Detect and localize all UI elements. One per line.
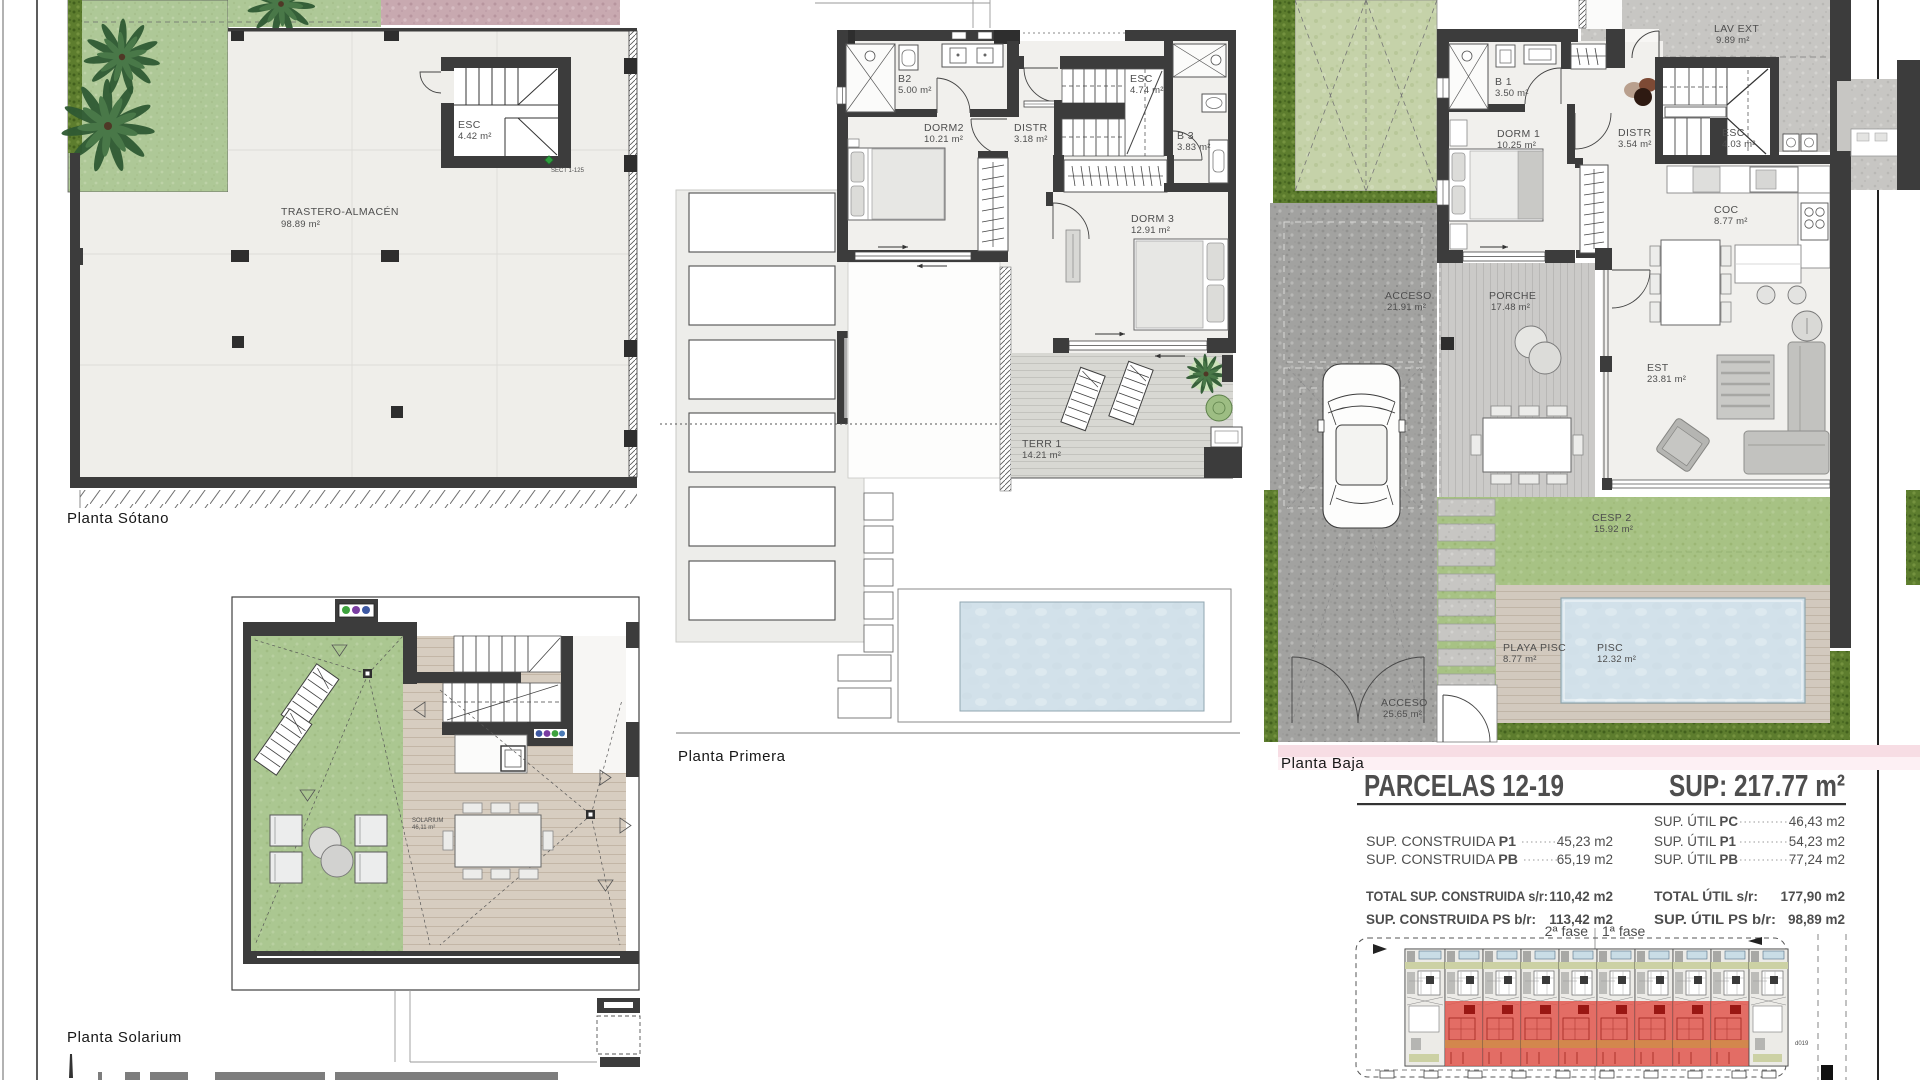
- svg-text:B 3: B 3: [1177, 130, 1194, 142]
- svg-text:SUP. ÚTIL PB: SUP. ÚTIL PB: [1654, 852, 1738, 867]
- svg-text:ESC: ESC: [1722, 127, 1745, 139]
- svg-text:TRASTERO-ALMACÉN: TRASTERO-ALMACÉN: [281, 205, 399, 218]
- svg-text:SECT 1-125: SECT 1-125: [551, 168, 585, 174]
- svg-text:8.77 m²: 8.77 m²: [1503, 654, 1537, 665]
- svg-text:98,89 m2: 98,89 m2: [1788, 912, 1845, 927]
- svg-text:Planta Baja: Planta Baja: [1281, 755, 1364, 772]
- svg-text:ACCESO: ACCESO: [1385, 290, 1432, 302]
- svg-text:SUP. CONSTRUIDA PB: SUP. CONSTRUIDA PB: [1366, 852, 1518, 867]
- svg-text:Planta Primera: Planta Primera: [678, 748, 786, 765]
- svg-text:SUP. ÚTIL P1: SUP. ÚTIL P1: [1654, 834, 1736, 849]
- svg-text:DORM 3: DORM 3: [1131, 213, 1174, 225]
- svg-text:12.91 m²: 12.91 m²: [1131, 225, 1170, 236]
- svg-text:DORM2: DORM2: [924, 122, 964, 134]
- svg-text:46,11 m²: 46,11 m²: [412, 825, 435, 831]
- svg-text:PARCELAS 12-19: PARCELAS 12-19: [1364, 768, 1564, 803]
- svg-text:4.42 m²: 4.42 m²: [458, 131, 492, 142]
- svg-text:4.74 m²: 4.74 m²: [1130, 85, 1164, 96]
- svg-text:PORCHE: PORCHE: [1489, 290, 1536, 302]
- svg-text:B 1: B 1: [1495, 76, 1512, 88]
- svg-text:3.83 m²: 3.83 m²: [1177, 142, 1211, 153]
- svg-text:CESP 2: CESP 2: [1592, 512, 1632, 524]
- svg-text:5.00 m²: 5.00 m²: [898, 85, 932, 96]
- svg-text:LAV EXT: LAV EXT: [1714, 23, 1759, 35]
- svg-text:TOTAL ÚTIL s/r:: TOTAL ÚTIL s/r:: [1654, 889, 1758, 904]
- svg-text:3.50 m²: 3.50 m²: [1495, 88, 1529, 99]
- svg-text:45,23 m2: 45,23 m2: [1557, 834, 1613, 849]
- svg-text:ACCESO: ACCESO: [1381, 697, 1428, 709]
- svg-text:54,23 m2: 54,23 m2: [1789, 834, 1845, 849]
- svg-text:46,43 m2: 46,43 m2: [1789, 814, 1845, 829]
- svg-text:B2: B2: [898, 73, 912, 85]
- svg-text:14.21 m²: 14.21 m²: [1022, 450, 1061, 461]
- svg-text:SUP. CONSTRUIDA PS b/r:: SUP. CONSTRUIDA PS b/r:: [1366, 912, 1536, 927]
- svg-text:SUP. CONSTRUIDA P1: SUP. CONSTRUIDA P1: [1366, 834, 1517, 849]
- svg-text:9.89 m²: 9.89 m²: [1716, 35, 1750, 46]
- svg-text:15.92 m²: 15.92 m²: [1594, 524, 1633, 535]
- svg-text:TERR 1: TERR 1: [1022, 438, 1062, 450]
- svg-text:110,42 m2: 110,42 m2: [1549, 889, 1613, 904]
- svg-text:4.03 m²: 4.03 m²: [1722, 139, 1756, 150]
- svg-text:Planta Sótano: Planta Sótano: [67, 510, 169, 527]
- svg-text:TOTAL SUP. CONSTRUIDA s/r:: TOTAL SUP. CONSTRUIDA s/r:: [1366, 889, 1548, 904]
- svg-text:ESC: ESC: [1130, 73, 1153, 85]
- svg-text:COC: COC: [1714, 204, 1739, 216]
- svg-text:10.25 m²: 10.25 m²: [1497, 140, 1536, 151]
- svg-text:25.65 m²: 25.65 m²: [1383, 709, 1422, 720]
- svg-text:DISTR: DISTR: [1618, 127, 1652, 139]
- svg-text:Planta Solarium: Planta Solarium: [67, 1029, 182, 1046]
- svg-text:17.48 m²: 17.48 m²: [1491, 302, 1530, 313]
- svg-text:1ª fase: 1ª fase: [1602, 923, 1646, 939]
- svg-text:23.81 m²: 23.81 m²: [1647, 374, 1686, 385]
- svg-text:65,19 m2: 65,19 m2: [1557, 852, 1613, 867]
- svg-text:12.32 m²: 12.32 m²: [1597, 654, 1636, 665]
- svg-text:21.91 m²: 21.91 m²: [1387, 302, 1426, 313]
- svg-text:10.21 m²: 10.21 m²: [924, 134, 963, 145]
- svg-text:DISTR: DISTR: [1014, 122, 1048, 134]
- svg-text:d019: d019: [1795, 1041, 1809, 1047]
- svg-text:ESC: ESC: [458, 119, 481, 131]
- svg-text:2ª fase: 2ª fase: [1545, 923, 1589, 939]
- svg-text:177,90 m2: 177,90 m2: [1780, 889, 1845, 904]
- svg-text:3.54 m²: 3.54 m²: [1618, 139, 1652, 150]
- svg-text:DORM 1: DORM 1: [1497, 128, 1540, 140]
- svg-text:EST: EST: [1647, 362, 1669, 374]
- svg-text:SUP. ÚTIL PS b/r:: SUP. ÚTIL PS b/r:: [1654, 912, 1776, 927]
- svg-text:SOLARIUM: SOLARIUM: [412, 818, 443, 824]
- svg-text:3.18 m²: 3.18 m²: [1014, 134, 1048, 145]
- svg-text:98.89 m²: 98.89 m²: [281, 219, 320, 230]
- svg-text:SUP. ÚTIL PC: SUP. ÚTIL PC: [1654, 814, 1738, 829]
- svg-text:PISC: PISC: [1597, 642, 1623, 654]
- svg-text:8.77 m²: 8.77 m²: [1714, 216, 1748, 227]
- svg-text:77,24 m2: 77,24 m2: [1789, 852, 1845, 867]
- svg-text:PLAYA PISC: PLAYA PISC: [1503, 642, 1566, 654]
- svg-text:SUP: 217.77 m²: SUP: 217.77 m²: [1669, 768, 1845, 803]
